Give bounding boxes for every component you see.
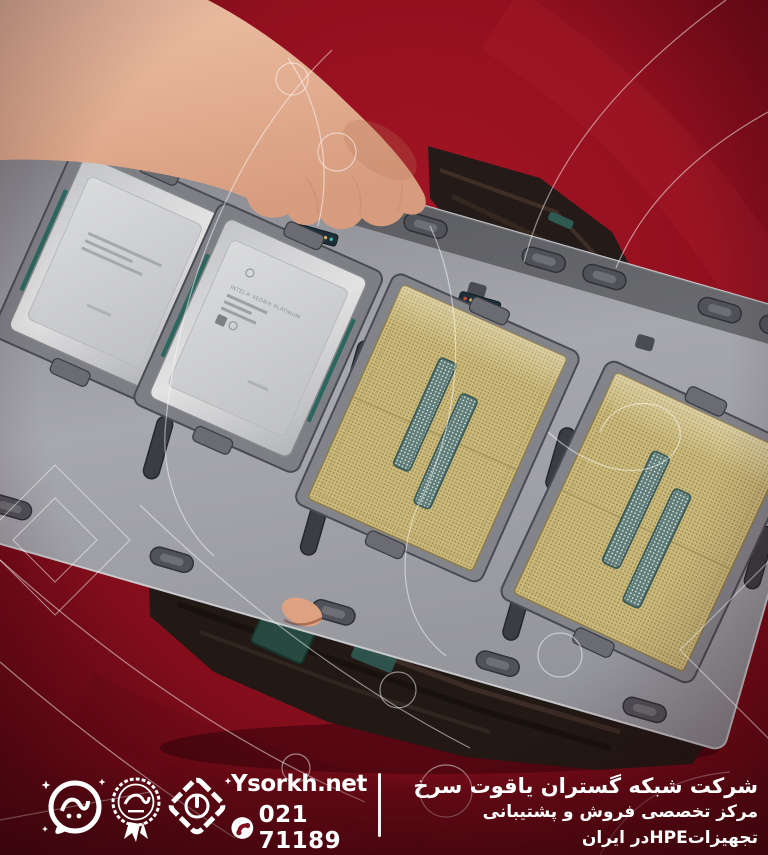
- phone-row: 021 71189: [231, 802, 381, 854]
- company-name-fa: شرکت شبکه گستران یاقوت سرخ: [398, 773, 758, 800]
- phone-number: 021 71189: [259, 802, 381, 854]
- scalloped-seal-badge: [113, 779, 159, 842]
- promo-photo: INTEL® XEON® PLATINUM: [0, 0, 768, 855]
- tagline-fa: مرکز تخصصی فروش و پشتیبانی تجهیزاتHPEدر …: [398, 800, 758, 851]
- footer-logos: [36, 769, 234, 849]
- diamond-chain-emblem: [169, 778, 232, 835]
- vignette: [0, 0, 768, 855]
- website-url: Ysorkh.net: [231, 772, 381, 797]
- photo-scene: INTEL® XEON® PLATINUM: [0, 0, 768, 855]
- phone-icon: [231, 815, 254, 841]
- persian-text-block: شرکت شبکه گستران یاقوت سرخ مرکز تخصصی فر…: [398, 773, 758, 851]
- speech-bubble-calligraphy-logo: [42, 779, 106, 834]
- footer-banner: Ysorkh.net 021 71189 شرکت شبکه گستران یا…: [0, 763, 768, 855]
- footer-divider: [378, 773, 381, 837]
